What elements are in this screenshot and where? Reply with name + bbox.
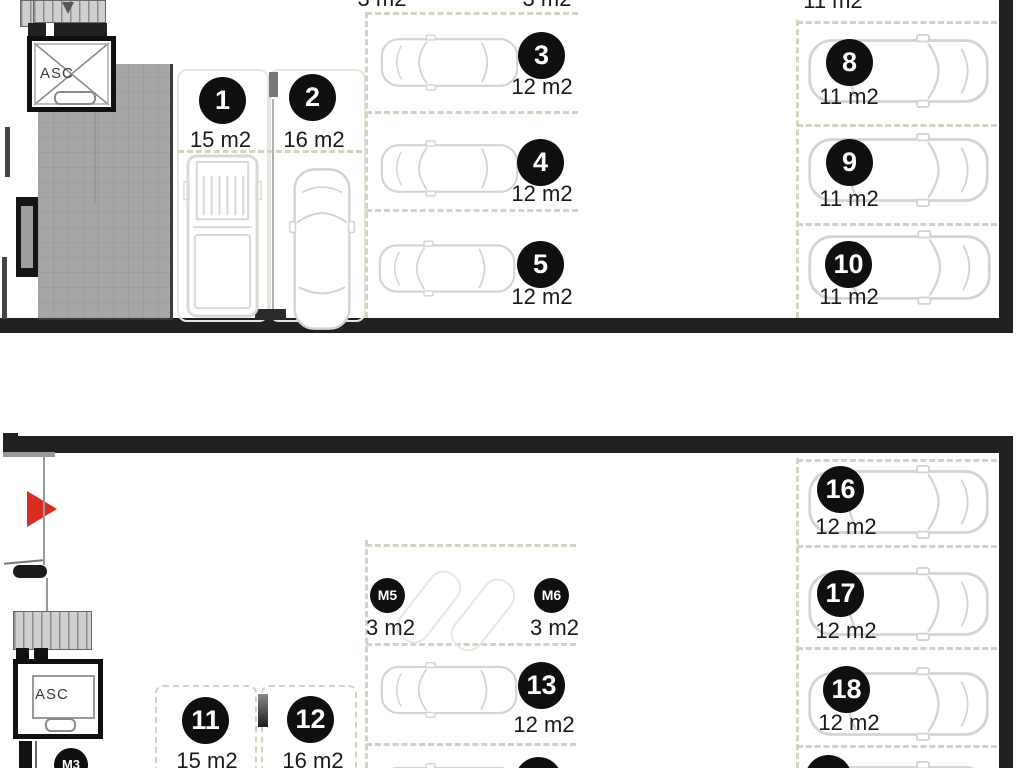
elevator-label-upper: ASC: [40, 65, 74, 82]
spot-area-17: 12 m2: [801, 618, 891, 644]
bay-sep-8-9: [797, 124, 997, 127]
wall-top-lower: [8, 436, 1013, 453]
wall-stub-left-b: [2, 257, 7, 319]
spot-badge-8: 8: [826, 39, 873, 86]
bay-edge-right-lower: [796, 458, 799, 768]
spot-area-12: 16 m2: [267, 748, 359, 768]
spot-badge-m5: M5: [370, 578, 405, 613]
partial-area-label-m2: 3 m2: [502, 0, 592, 12]
vehicle-spot-2: [283, 166, 361, 332]
bay-sep-3-4: [366, 111, 578, 114]
wall-gray-strip: [3, 452, 55, 457]
elevator-label-lower: ASC: [35, 686, 69, 703]
bay-sep-16-top: [797, 459, 997, 462]
bay-sep-moto-top: [366, 544, 576, 547]
wall-block-b: [34, 648, 48, 659]
spot-area-1: 15 m2: [173, 127, 268, 153]
wall-door-gap: [46, 23, 54, 36]
spot-area-4: 12 m2: [497, 181, 587, 207]
vehicle-spot-14-partial: [379, 753, 519, 768]
guide-line-upper: [43, 453, 45, 565]
guide-line-lower: [46, 578, 48, 611]
spot-badge-m6: M6: [534, 578, 569, 613]
bay-sep-17-18: [797, 647, 997, 650]
spot-area-5: 12 m2: [497, 284, 587, 310]
door-swing-line: [4, 559, 43, 564]
spot-badge-9: 9: [826, 139, 873, 186]
wall-right-lower: [999, 436, 1013, 768]
spot-badge-2: 2: [289, 74, 336, 121]
spot-area-18: 12 m2: [804, 710, 894, 736]
elevator-counterweight: [54, 91, 96, 105]
bay-edge-mid-lower: [365, 540, 368, 768]
wall-stub-left-a: [5, 127, 10, 177]
spot-badge-5: 5: [517, 241, 564, 288]
wall-bottom-upper: [0, 318, 1013, 333]
line-below-elevator: [35, 741, 37, 768]
stair-arrow-icon: [62, 2, 74, 14]
bay-sep-18-19: [797, 745, 997, 748]
partial-area-label-7: 11 m2: [788, 0, 878, 14]
wall-core-upper: [28, 23, 107, 36]
bay-sep-13-14: [366, 743, 576, 746]
spot-area-11: 15 m2: [162, 748, 252, 768]
vehicle-spot-1: [183, 152, 262, 320]
wall-line-below-elevator: [94, 112, 96, 204]
bay-sep-mid-top: [366, 12, 578, 15]
bay-sep-7-8: [797, 21, 997, 24]
elevator-upper: ASC: [27, 36, 116, 112]
bay-edge-right: [796, 20, 799, 318]
north-arrow-icon: [27, 491, 57, 527]
wall-block-a: [16, 648, 29, 659]
elevator-counterweight-lower: [45, 718, 76, 732]
spot-area-m5: 3 m2: [348, 615, 433, 641]
spot-area-2: 16 m2: [268, 127, 360, 153]
spot-badge-10: 10: [825, 241, 872, 288]
bay-sep-9-10: [797, 223, 997, 226]
spot-badge-16: 16: [817, 466, 864, 513]
vehicle-spot-5: [377, 231, 517, 306]
elevator-lower: ASC: [13, 659, 103, 739]
spot-badge-14-partial: [515, 757, 562, 768]
spot-badge-3: 3: [518, 32, 565, 79]
spot-area-16: 12 m2: [801, 514, 891, 540]
spot-badge-m3: M3: [54, 748, 88, 768]
spot-badge-11: 11: [182, 697, 229, 744]
bay-edge-mid: [365, 12, 368, 318]
spot-area-3: 12 m2: [497, 74, 587, 100]
spot-badge-12: 12: [287, 696, 334, 743]
spot-badge-17: 17: [817, 570, 864, 617]
bay-sep-4-5: [366, 209, 578, 212]
door-leaf: [13, 565, 47, 578]
spot-badge-19-partial: [805, 755, 852, 768]
wall-right-upper: [999, 0, 1013, 333]
spot-area-13: 12 m2: [499, 712, 589, 738]
column-1-2: [269, 72, 278, 97]
bay-sep-16-17: [797, 545, 997, 548]
vehicle-spot-13: [379, 652, 519, 728]
column-11-12: [258, 694, 268, 727]
spot-badge-13: 13: [518, 662, 565, 709]
wall-stub-below-elevator: [19, 741, 32, 768]
spot-badge-1: 1: [199, 77, 246, 124]
stair-treads-lower: [13, 611, 92, 650]
spot-badge-18: 18: [823, 666, 870, 713]
spot-area-10: 11 m2: [803, 284, 895, 310]
wall-pier-inner: [21, 206, 33, 268]
garage-floor-plans: 3 m2 3 m2 11 m2 ASC: [0, 0, 1024, 768]
spot-badge-4: 4: [517, 139, 564, 186]
spot-area-9: 11 m2: [803, 186, 895, 212]
spot-area-m6: 3 m2: [512, 615, 597, 641]
partial-area-label-m1: 3 m2: [337, 0, 427, 12]
spot-area-8: 11 m2: [803, 84, 895, 110]
